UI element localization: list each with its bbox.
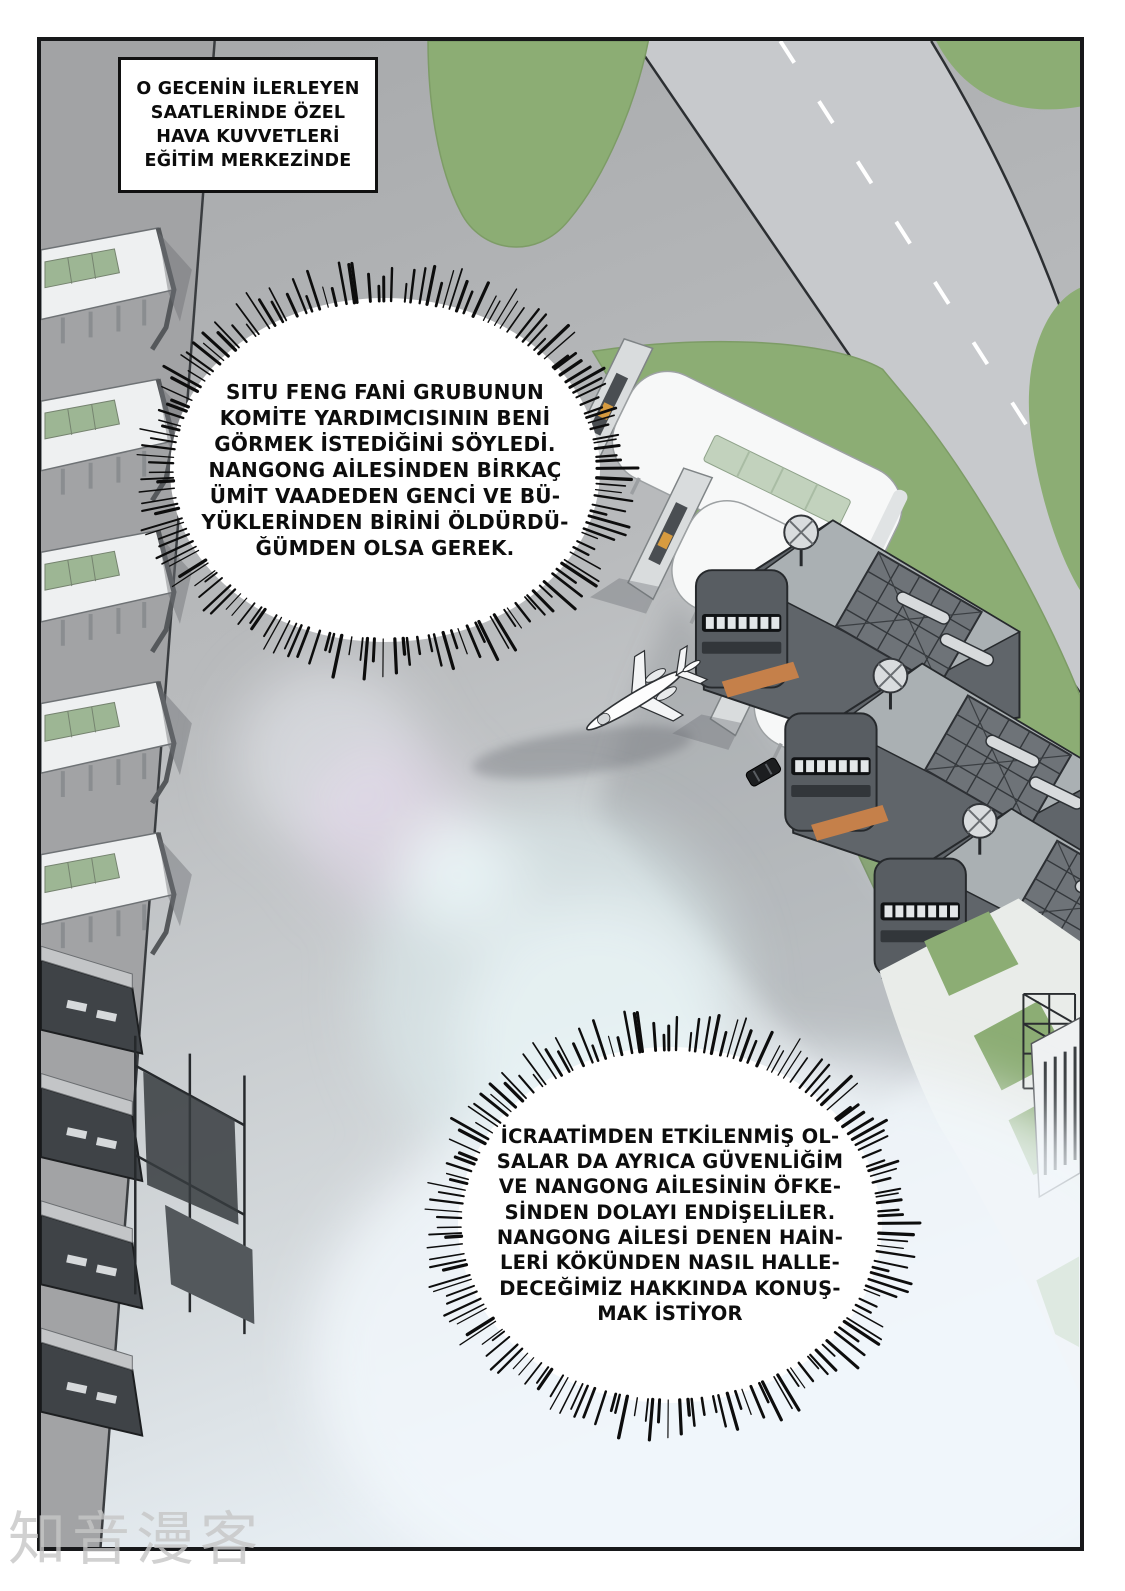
narration-text: O GECENİN İLERLEYEN SAATLERİNDE ÖZEL HAV… (136, 77, 359, 174)
speech-bubble-1-text: SITU FENG FANİ GRUBUNUN KOMİTE YARDIMCIS… (125, 253, 645, 687)
speech-bubble-1: SITU FENG FANİ GRUBUNUN KOMİTE YARDIMCIS… (125, 253, 645, 687)
speech-bubble-2: İCRAATİMDEN ETKİLENMİŞ OL- SALAR DA AYRI… (413, 1002, 927, 1448)
narration-box: O GECENİN İLERLEYEN SAATLERİNDE ÖZEL HAV… (118, 57, 378, 193)
watermark-text: 知音漫客 (8, 1492, 264, 1576)
comic-page: O GECENİN İLERLEYEN SAATLERİNDE ÖZEL HAV… (0, 0, 1125, 1591)
speech-bubble-2-text: İCRAATİMDEN ETKİLENMİŞ OL- SALAR DA AYRI… (413, 1002, 927, 1448)
